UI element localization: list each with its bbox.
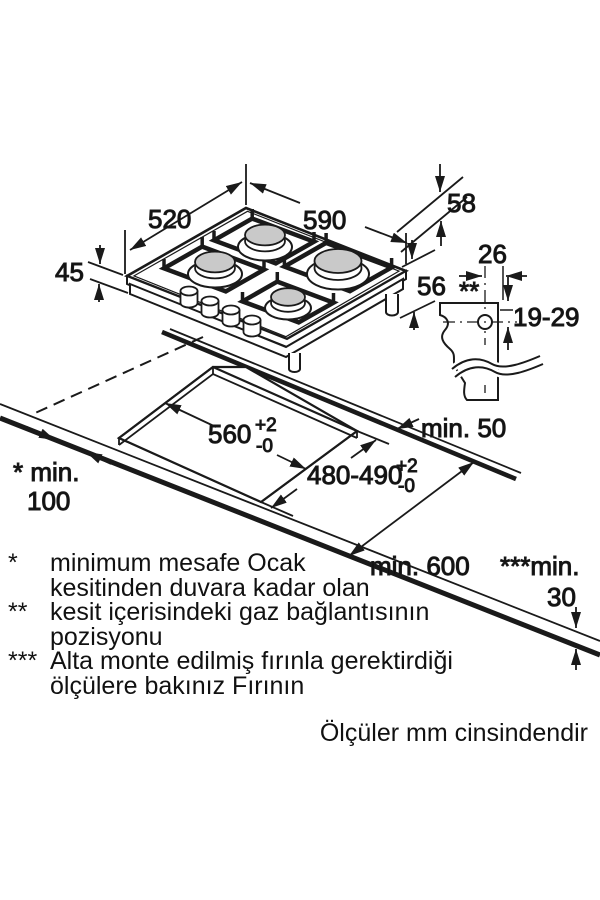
dim-label-45: 45 <box>55 257 84 287</box>
diagram-canvas: 520 590 58 45 56 <box>0 0 600 900</box>
tolerance-sub: -0 <box>256 436 273 457</box>
dim-label-520: 520 <box>148 204 191 234</box>
extension-line <box>88 262 123 275</box>
dimension-58: 58 <box>397 164 476 252</box>
tolerance-sup: +2 <box>396 456 418 477</box>
footnote-line: ölçülere bakınız Fırının <box>50 674 453 699</box>
footnote-line: minimum mesafe Ocak <box>50 551 370 576</box>
tolerance-sub: -0 <box>398 476 415 497</box>
footnote-3: *** Alta monte edilmiş fırınla gerektird… <box>8 649 588 698</box>
footnote-line: pozisyonu <box>50 625 429 650</box>
footnote-line: kesit içerisindeki gaz bağlantısının <box>50 600 429 625</box>
label-min50: min. 50 <box>421 413 506 443</box>
tolerance-sup: +2 <box>255 415 277 436</box>
units-note: Ölçüler mm cinsindendir <box>8 721 588 746</box>
burner-front <box>265 288 311 319</box>
dim-label-590: 590 <box>303 205 346 235</box>
knob-top <box>181 287 198 296</box>
dim-label-26: 26 <box>478 239 507 269</box>
knob-top <box>244 316 261 325</box>
dim-label-480-490: 480-490 <box>307 460 402 490</box>
burner-cap <box>245 225 285 246</box>
dim-label-560: 560 <box>208 419 251 449</box>
burner-right <box>307 249 369 290</box>
knob-top <box>202 297 219 306</box>
burner-cap <box>271 288 305 306</box>
dim-label-58: 58 <box>447 188 476 218</box>
footnote-line: Alta monte edilmiş fırınla gerektirdiği <box>50 649 453 674</box>
footnote-2: ** kesit içerisindeki gaz bağlantısının … <box>8 600 588 649</box>
extension-line <box>402 250 435 267</box>
footnote-text: kesit içerisindeki gaz bağlantısının poz… <box>50 600 429 649</box>
dimension-line <box>351 440 376 458</box>
hob-leg-right <box>386 294 398 316</box>
dimension-line <box>250 183 300 203</box>
gas-marker: ** <box>459 276 479 306</box>
burner-cap <box>195 252 235 273</box>
footnote-text: minimum mesafe Ocak kesitinden duvara ka… <box>50 551 370 600</box>
footnote-marker: ** <box>8 600 50 649</box>
label-min100-b: 100 <box>27 486 70 516</box>
dim-label-19-29: 19-29 <box>513 302 580 332</box>
footnote-marker: *** <box>8 649 50 698</box>
extension-line <box>90 279 128 293</box>
extension-line <box>400 301 435 318</box>
dim-label-56: 56 <box>417 271 446 301</box>
gas-connection-detail: 26 ** 19-29 <box>440 239 580 400</box>
burner-cap <box>315 249 362 273</box>
footnote-1: * minimum mesafe Ocak kesitinden duvara … <box>8 551 588 600</box>
dimension-45: 45 <box>55 245 128 302</box>
footnotes: * minimum mesafe Ocak kesitinden duvara … <box>8 551 588 746</box>
knob-top <box>223 306 240 315</box>
footnote-line: kesitinden duvara kadar olan <box>50 576 370 601</box>
footnote-text: Alta monte edilmiş fırınla gerektirdiği … <box>50 649 453 698</box>
hob-leg-front <box>289 353 300 372</box>
installation-diagram: 520 590 58 45 56 <box>0 0 600 900</box>
arrow-line <box>27 427 55 440</box>
footnote-marker: * <box>8 551 50 600</box>
label-min100-a: * min. <box>13 457 79 487</box>
